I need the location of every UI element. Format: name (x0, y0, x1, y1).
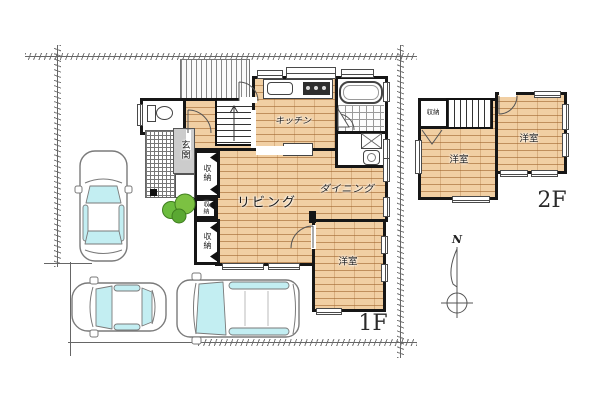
wall-living-western (309, 211, 316, 223)
boundary-tick (44, 263, 92, 264)
wash-basin-bowl (367, 153, 376, 162)
boundary-west (54, 45, 61, 267)
door-opening (256, 146, 310, 155)
window (316, 308, 342, 315)
entrance-step (175, 174, 195, 198)
window (383, 158, 390, 182)
room-label-living: リビング (237, 197, 297, 210)
floor-label-1f: 1F (358, 313, 387, 335)
room-label-storage-1: 収納 (203, 164, 211, 182)
compass: N (441, 233, 473, 318)
stairs-1f (215, 98, 255, 146)
boundary-south (195, 339, 417, 346)
window (383, 82, 390, 102)
stove (303, 82, 330, 95)
floor-plan-canvas: N リビング ダイニング キッチン 洋室 玄関 収納 収納 収納 洋室 洋室 収… (0, 0, 600, 400)
window (562, 133, 569, 157)
boundary-east (397, 45, 404, 358)
toilet-tank (147, 105, 156, 122)
porch-post (150, 189, 157, 196)
room-label-western-2f-right: 洋室 (519, 134, 538, 144)
burner (306, 86, 310, 90)
room-label-entrance: 玄関 (180, 140, 189, 160)
boundary-south-plain (68, 342, 198, 343)
entrance-tile-porch (145, 130, 176, 198)
window (383, 139, 390, 159)
room-label-western-2f-left: 洋室 (449, 155, 468, 165)
stairs-2f (446, 98, 493, 129)
toilet-bowl (156, 106, 173, 120)
door-opening (499, 90, 516, 97)
washing-machine (361, 133, 382, 149)
window (452, 196, 490, 203)
exterior-deck (180, 59, 250, 102)
burner (314, 86, 318, 90)
tree (163, 194, 196, 223)
window (383, 197, 390, 217)
window (286, 67, 336, 79)
window (531, 170, 558, 177)
door-opening (311, 225, 316, 249)
window (137, 104, 143, 126)
room-label-kitchen: キッチン (275, 118, 311, 127)
window (381, 236, 388, 254)
bath-tile-floor (338, 105, 384, 131)
burner (322, 86, 326, 90)
window (257, 70, 283, 79)
car-minivan (177, 273, 299, 344)
room-label-storage-3: 収納 (203, 232, 211, 250)
door-opening (239, 97, 257, 103)
window (341, 69, 374, 78)
car-sedan (75, 151, 132, 261)
window (381, 264, 388, 282)
window (500, 170, 528, 177)
window (415, 140, 422, 174)
room-label-storage-2: 収納 (202, 201, 208, 215)
window (222, 263, 264, 270)
floor-label-2f: 2F (537, 190, 566, 212)
window (534, 91, 561, 98)
bathtub-inner (343, 85, 379, 100)
window (562, 104, 569, 130)
room-label-dining: ダイニング (320, 185, 375, 195)
room-label-western-1f: 洋室 (338, 257, 357, 267)
compass-north-label: N (451, 233, 463, 246)
car-hatchback (72, 277, 166, 337)
room-label-storage-2f: 収納 (427, 109, 440, 116)
window (268, 263, 300, 270)
kitchen-sink (267, 82, 293, 95)
door-opening (251, 110, 256, 148)
